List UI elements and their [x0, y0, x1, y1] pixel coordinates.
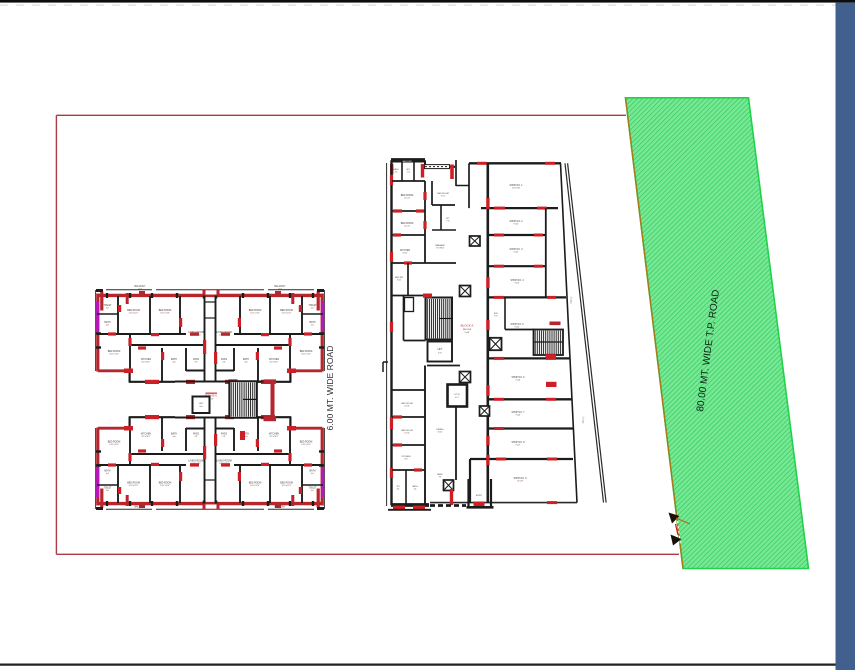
svg-text:10'0"x12'0": 10'0"x12'0"	[282, 313, 292, 315]
svg-text:9'x25': 9'x25'	[514, 327, 520, 329]
svg-text:REFUGE: REFUGE	[463, 329, 472, 331]
svg-text:BATH: BATH	[171, 433, 177, 436]
svg-text:9'x27': 9'x27'	[515, 445, 521, 447]
svg-text:6'x6': 6'x6'	[438, 352, 442, 354]
svg-text:TOI: TOI	[396, 486, 400, 488]
svg-text:4x6: 4x6	[414, 489, 417, 491]
svg-text:10'0"x11'6": 10'0"x11'6"	[160, 313, 170, 315]
svg-text:9'x26': 9'x26'	[515, 415, 521, 417]
svg-text:3'6": 3'6"	[194, 362, 198, 364]
svg-text:BATH: BATH	[243, 358, 249, 361]
svg-text:4x7: 4x7	[311, 473, 314, 475]
svg-text:BALCONY: BALCONY	[402, 160, 412, 163]
svg-text:10'6"x17'0": 10'6"x17'0"	[191, 335, 201, 337]
svg-text:10'6"x17'0": 10'6"x17'0"	[219, 335, 229, 337]
svg-text:10'x11': 10'x11'	[404, 198, 411, 200]
svg-text:10'6"x17'0": 10'6"x17'0"	[219, 463, 229, 465]
svg-text:ENTRY: ENTRY	[476, 495, 483, 497]
svg-text:LIFT: LIFT	[438, 349, 443, 351]
svg-text:BATH: BATH	[310, 470, 316, 473]
svg-text:10'x11': 10'x11'	[404, 433, 410, 435]
svg-text:BALCONY: BALCONY	[135, 506, 146, 509]
svg-text:10'0"x12'0": 10'0"x12'0"	[129, 485, 139, 487]
svg-text:BATH: BATH	[171, 358, 177, 361]
svg-text:BATH: BATH	[393, 168, 399, 171]
svg-text:4x7: 4x7	[106, 473, 109, 475]
svg-text:9'x24': 9'x24'	[513, 224, 519, 226]
svg-text:BALCONY: BALCONY	[275, 285, 286, 288]
svg-text:10'0"x11'6": 10'0"x11'6"	[160, 485, 170, 487]
svg-text:10'0"x12'0": 10'0"x12'0"	[109, 354, 119, 356]
svg-text:6x6: 6x6	[199, 406, 202, 408]
svg-text:BATH: BATH	[413, 485, 419, 488]
svg-text:14'6"x38': 14'6"x38'	[512, 188, 521, 190]
svg-text:9'x11': 9'x11'	[441, 196, 446, 198]
svg-text:4x7: 4x7	[106, 308, 109, 310]
svg-text:PASS: PASS	[221, 358, 227, 361]
svg-text:10'6"x17'0": 10'6"x17'0"	[191, 463, 201, 465]
svg-text:9'x18': 9'x18'	[465, 332, 470, 334]
svg-text:8'0"x10'0": 8'0"x10'0"	[270, 362, 279, 364]
svg-text:BATH: BATH	[105, 321, 111, 324]
svg-text:10'0"x12'0": 10'0"x12'0"	[129, 313, 139, 315]
svg-text:8'0"x10'0": 8'0"x10'0"	[142, 436, 151, 438]
svg-text:3'6": 3'6"	[222, 362, 226, 364]
svg-text:9'x24': 9'x24'	[513, 252, 519, 254]
svg-text:PASSAGE: PASSAGE	[435, 244, 445, 247]
svg-text:9'x25': 9'x25'	[514, 283, 520, 285]
svg-text:PASS: PASS	[193, 433, 199, 436]
svg-text:9'x26': 9'x26'	[515, 380, 521, 382]
svg-text:BLOCK A: BLOCK A	[461, 324, 474, 328]
svg-text:3'6": 3'6"	[194, 436, 198, 438]
svg-text:4x7: 4x7	[106, 490, 109, 492]
svg-text:10'0"x12'0": 10'0"x12'0"	[282, 485, 292, 487]
svg-text:8'x10': 8'x10'	[402, 253, 408, 255]
svg-text:9'x10': 9'x10'	[397, 280, 402, 282]
svg-text:14'x28': 14'x28'	[517, 481, 524, 483]
svg-text:4x7: 4x7	[311, 308, 314, 310]
svg-text:10'0"x12'0": 10'0"x12'0"	[301, 444, 311, 446]
svg-text:PASS: PASS	[221, 433, 227, 436]
svg-text:KIT.: KIT.	[446, 218, 450, 220]
svg-text:4x6: 4x6	[395, 172, 398, 174]
svg-text:10'0"x11'6": 10'0"x11'6"	[250, 485, 260, 487]
svg-text:10'x11': 10'x11'	[404, 226, 411, 228]
svg-text:8'0"x10'0": 8'0"x10'0"	[142, 362, 151, 364]
svg-text:4x7: 4x7	[106, 325, 109, 327]
svg-text:BATH: BATH	[310, 321, 316, 324]
svg-text:BATH: BATH	[105, 470, 111, 473]
svg-text:BALCONY: BALCONY	[275, 506, 286, 509]
svg-text:10'0"x11'6": 10'0"x11'6"	[250, 313, 260, 315]
svg-text:PASS: PASS	[193, 358, 199, 361]
svg-text:4x7: 4x7	[311, 325, 314, 327]
svg-text:4x6: 4x6	[397, 489, 400, 491]
svg-text:LIFT: LIFT	[199, 403, 204, 405]
svg-text:BALCONY: BALCONY	[135, 285, 146, 288]
svg-text:8'x10': 8'x10'	[438, 432, 443, 434]
svg-text:4x6: 4x6	[407, 172, 410, 174]
svg-text:6.00 MT. WIDE ROAD: 6.00 MT. WIDE ROAD	[325, 346, 335, 431]
svg-text:10'x11': 10'x11'	[404, 406, 410, 408]
svg-text:10'0"x12'0": 10'0"x12'0"	[109, 444, 119, 446]
svg-text:10'0"x12'0": 10'0"x12'0"	[301, 354, 311, 356]
svg-text:3'6" WIDE: 3'6" WIDE	[436, 248, 445, 250]
svg-text:6'x7': 6'x7'	[455, 397, 459, 399]
svg-text:3'6": 3'6"	[439, 477, 442, 479]
svg-text:3'6": 3'6"	[222, 436, 226, 438]
svg-text:PASS.: PASS.	[437, 473, 443, 476]
svg-text:O.T.S.: O.T.S.	[454, 394, 460, 396]
svg-text:4x7: 4x7	[311, 490, 314, 492]
svg-text:8'0"x10'0": 8'0"x10'0"	[270, 436, 279, 438]
